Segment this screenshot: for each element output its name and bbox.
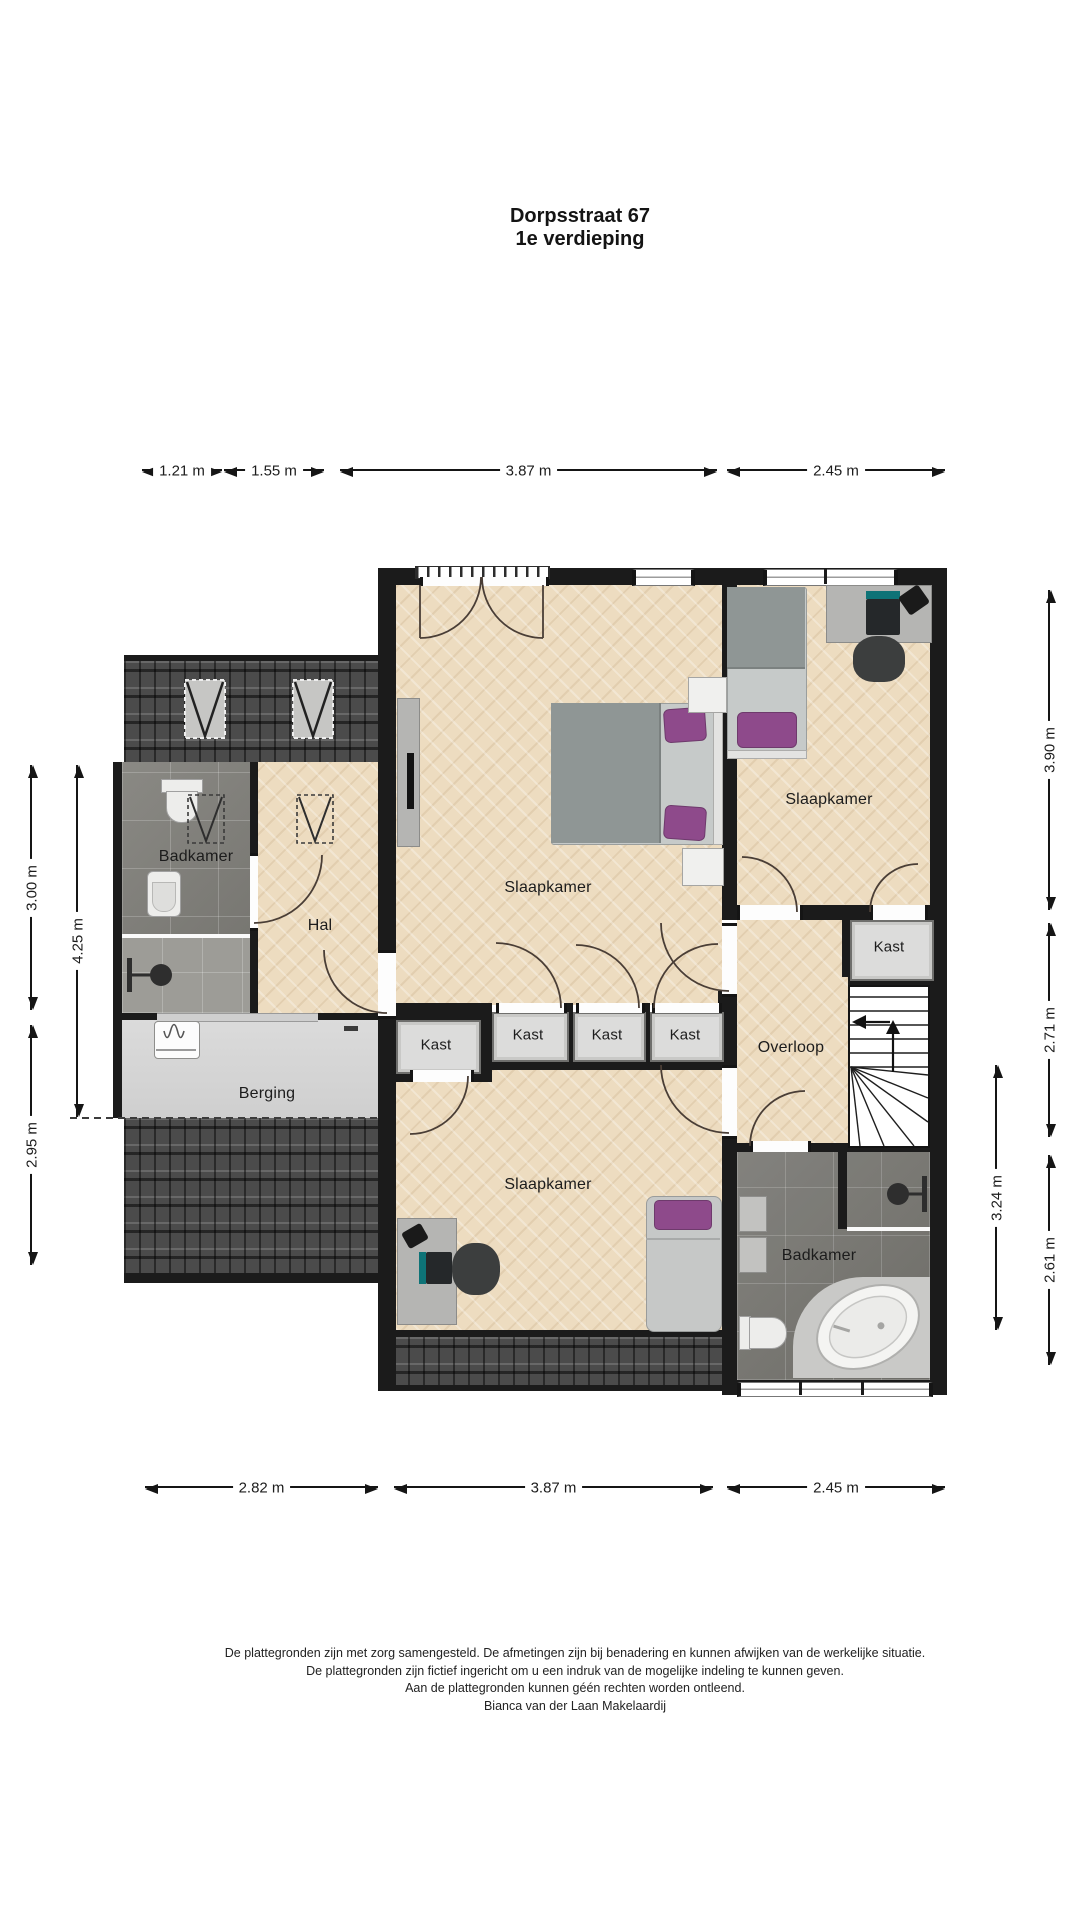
dimension-value: 3.87 m	[500, 463, 558, 480]
wall	[722, 1133, 737, 1380]
room-label-storage: Berging	[239, 1085, 296, 1103]
dimension-value: 2.71 m	[1042, 1001, 1059, 1059]
disclaimer-line: De plattegronden zijn fictief ingericht …	[70, 1663, 1080, 1681]
wall	[113, 1013, 157, 1020]
disclaimer-line: De plattegronden zijn met zorg samengest…	[70, 1645, 1080, 1663]
nightstand	[682, 848, 724, 886]
dimension-value: 3.24 m	[989, 1169, 1006, 1227]
hall-floor	[258, 762, 378, 1013]
dimension-value: 1.21 m	[153, 463, 211, 480]
dimension-left-2: 4.25 m	[76, 765, 78, 1117]
pillow	[737, 712, 797, 748]
roof-bottom-left	[124, 1118, 378, 1273]
door	[737, 905, 803, 920]
dimension-right-3: 2.61 m	[1048, 1155, 1050, 1365]
title-address: Dorpsstraat 67	[80, 205, 1080, 228]
roof-edge	[124, 1273, 378, 1283]
washbasin	[739, 1196, 767, 1232]
window-mullion	[824, 569, 827, 584]
dimension-right-1: 3.90 m	[1048, 590, 1050, 910]
window	[763, 569, 898, 586]
door	[410, 1070, 474, 1082]
nightstand	[688, 677, 727, 713]
shower-glass	[122, 934, 250, 938]
bed-duvet	[551, 703, 661, 843]
dimension-value: 1.55 m	[245, 463, 303, 480]
room-label-closet: Kast	[421, 1037, 452, 1054]
balcony-doors	[420, 577, 549, 586]
door	[378, 950, 396, 1019]
disclaimer-line: Bianca van der Laan Makelaardij	[70, 1698, 1080, 1716]
chaise-seam	[646, 1238, 720, 1240]
room-label-bedroom-bottom: Slaapkamer	[504, 1176, 591, 1194]
wall	[113, 762, 122, 1118]
wall	[797, 905, 872, 920]
room-label-closet: Kast	[670, 1027, 701, 1044]
bed-duvet	[727, 587, 805, 669]
disclaimer-line: Aan de plattegronden kunnen géén rechten…	[70, 1680, 1080, 1698]
room-label-bathroom-right: Badkamer	[782, 1247, 857, 1265]
window	[632, 569, 695, 586]
dimension-value: 2.61 m	[1042, 1231, 1059, 1289]
disclaimer: De plattegronden zijn met zorg samengest…	[70, 1645, 1080, 1715]
bed-headboard	[713, 703, 723, 845]
room-label-closet: Kast	[513, 1027, 544, 1044]
wall	[378, 1385, 722, 1391]
window-mullion	[861, 1382, 864, 1395]
pillow	[663, 805, 707, 842]
dimension-right-4: 3.24 m	[995, 1065, 997, 1330]
dimension-value: 3.87 m	[525, 1480, 583, 1497]
dimension-top-2: 1.55 m	[224, 469, 324, 471]
toilet-bowl	[166, 791, 198, 823]
wall	[838, 1152, 847, 1229]
dimension-value: 2.82 m	[233, 1480, 291, 1497]
shower-floor	[122, 938, 250, 1013]
dimension-top-4: 2.45 m	[727, 469, 945, 471]
dimension-value: 2.45 m	[807, 463, 865, 480]
room-label-closet: Kast	[592, 1027, 623, 1044]
shower-glass	[847, 1227, 930, 1231]
wall	[250, 925, 258, 1013]
wall	[737, 1143, 750, 1152]
sink-basin	[152, 882, 176, 912]
room-label-bedroom-right: Slaapkamer	[785, 791, 872, 809]
toilet-bowl	[749, 1317, 787, 1349]
tv	[407, 753, 414, 809]
roof-edge	[124, 655, 378, 661]
room-label-bedroom-main: Slaapkamer	[504, 879, 591, 897]
dimension-left-1: 3.00 m	[30, 765, 32, 1010]
dimension-value: 2.45 m	[807, 1480, 865, 1497]
door	[496, 1003, 567, 1013]
dimension-left-3: 2.95 m	[30, 1025, 32, 1265]
title-floor: 1e verdieping	[80, 228, 1080, 251]
door	[652, 1003, 722, 1013]
bed-footboard	[727, 750, 807, 759]
door	[750, 1141, 811, 1152]
desk-chair	[452, 1243, 500, 1295]
room-label-bathroom-left: Badkamer	[159, 848, 234, 866]
floorplan-page: { "title": { "line1": "Dorpsstraat 67", …	[0, 0, 1080, 1920]
pillow	[654, 1200, 712, 1230]
laptop	[426, 1252, 452, 1284]
roof-bottom-main	[378, 1337, 722, 1385]
wall	[318, 1013, 378, 1020]
dimension-bottom-2: 3.87 m	[394, 1486, 713, 1488]
page-title: Dorpsstraat 67 1e verdieping	[80, 205, 1080, 251]
door	[722, 923, 737, 997]
laptop	[866, 599, 900, 635]
door	[576, 1003, 645, 1013]
dimension-value: 4.25 m	[70, 912, 87, 970]
dimension-value: 3.00 m	[24, 859, 41, 917]
room-label-closet: Kast	[874, 939, 905, 956]
window	[737, 1382, 933, 1397]
roof-top-left	[124, 661, 378, 762]
washbasin	[739, 1237, 767, 1273]
radiator-mark	[344, 1026, 358, 1031]
dimension-right-2: 2.71 m	[1048, 923, 1050, 1137]
dimension-value: 3.90 m	[1042, 721, 1059, 779]
office-chair	[853, 636, 905, 682]
dimension-bottom-3: 2.45 m	[727, 1486, 945, 1488]
room-label-landing: Overloop	[758, 1039, 825, 1057]
door	[722, 1065, 737, 1139]
window-mullion	[799, 1382, 802, 1395]
laptop-screen	[866, 591, 900, 599]
room-label-hall: Hal	[308, 917, 333, 935]
wall	[842, 920, 850, 977]
door	[870, 905, 928, 920]
wall	[930, 585, 947, 1395]
dimension-value: 2.95 m	[24, 1116, 41, 1174]
door	[250, 853, 258, 931]
dimension-top-1: 1.21 m	[142, 469, 222, 471]
washing-machine	[154, 1021, 200, 1059]
dimension-top-3: 3.87 m	[340, 469, 717, 471]
wall	[250, 762, 258, 855]
laptop-screen	[419, 1252, 426, 1284]
staircase	[848, 985, 930, 1148]
dimension-bottom-1: 2.82 m	[145, 1486, 378, 1488]
